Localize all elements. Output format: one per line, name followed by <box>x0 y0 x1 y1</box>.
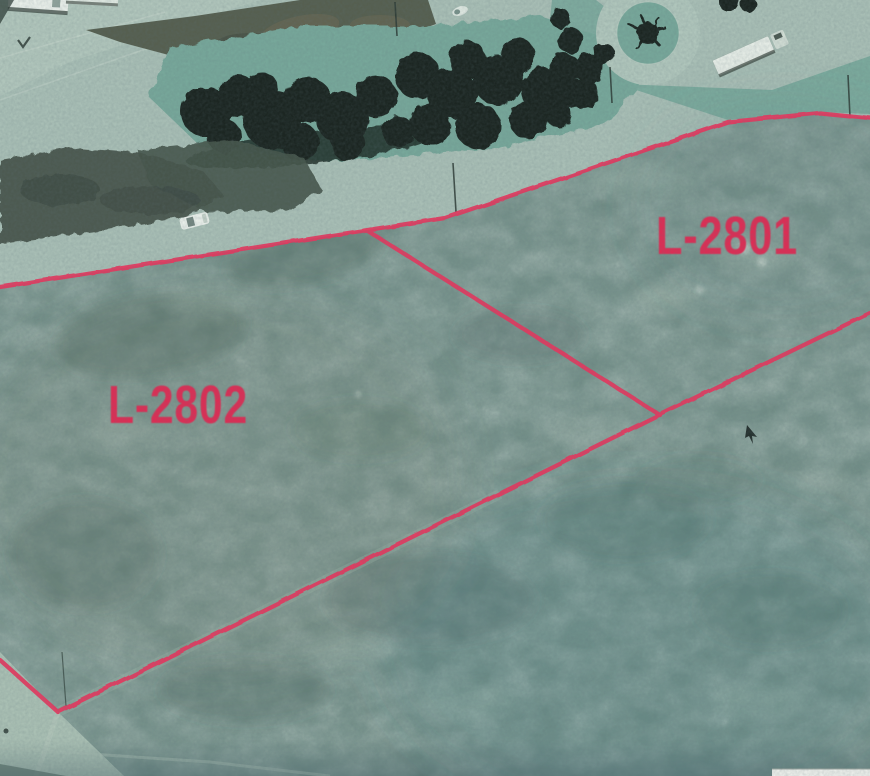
scanned-aerial-photo: L-2801 L-2802 <box>0 0 870 776</box>
aerial-parcel-photo: L-2801 L-2802 <box>0 0 870 776</box>
film-grain <box>0 0 870 776</box>
